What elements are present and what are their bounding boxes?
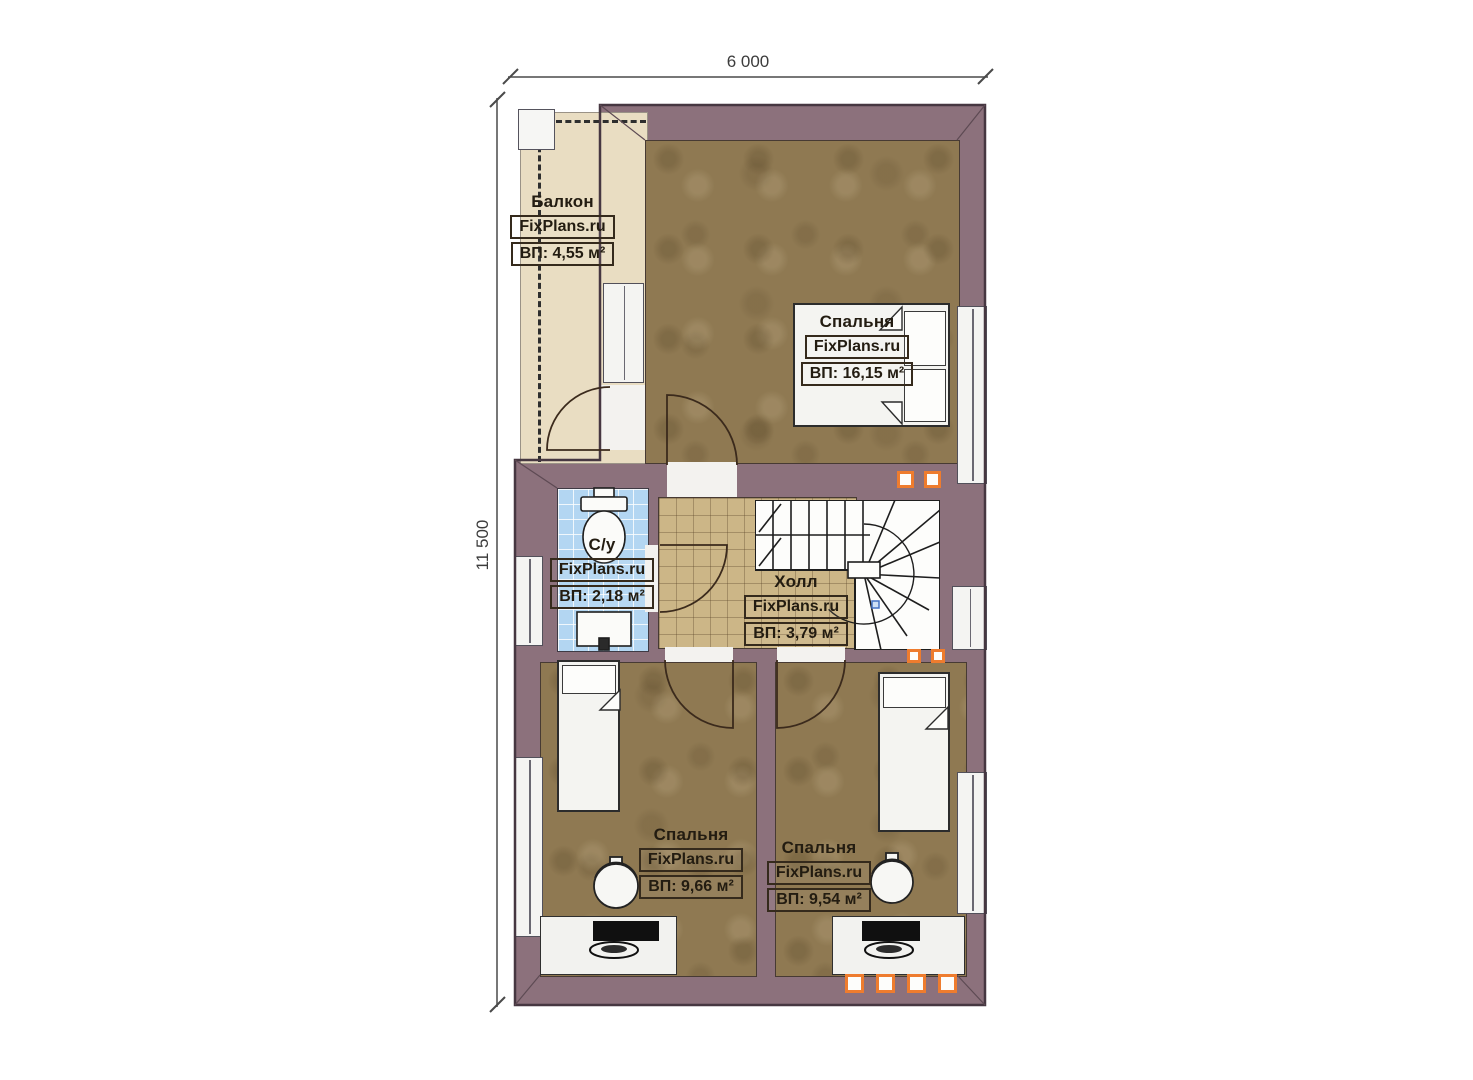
watermark-box: FixPlans.ru [510, 215, 614, 239]
room-name: С/у [588, 535, 615, 555]
vent-marker [931, 649, 945, 663]
area-box: ВП: 4,55 м² [511, 242, 615, 266]
room-label-bedroom-right: Спальня FixPlans.ru ВП: 9,54 м² [760, 838, 878, 912]
room-name: Холл [774, 572, 817, 592]
room-name: Спальня [782, 838, 857, 858]
room-label-bathroom: С/у FixPlans.ru ВП: 2,18 м² [548, 535, 656, 609]
vent-marker [897, 471, 914, 488]
blanket-fold [600, 690, 620, 710]
watermark-box: FixPlans.ru [805, 335, 909, 359]
dimension-height-label: 11 500 [473, 490, 493, 600]
door-bedroom-left [665, 660, 733, 728]
vent-marker [907, 649, 921, 663]
watermark-box: FixPlans.ru [550, 558, 654, 582]
door-bedroom-right [777, 660, 845, 728]
room-name: Спальня [654, 825, 729, 845]
door-master [667, 395, 737, 465]
dimension-width-label: 6 000 [693, 52, 803, 72]
plan-linework [0, 0, 1473, 1080]
room-label-bedroom-master: Спальня FixPlans.ru ВП: 16,15 м² [798, 312, 916, 386]
area-box: ВП: 9,54 м² [767, 888, 871, 912]
watermark-box: FixPlans.ru [639, 848, 743, 872]
floor-plan-canvas: Балкон FixPlans.ru ВП: 4,55 м² Спальня F… [0, 0, 1473, 1080]
monitor-left [593, 921, 659, 941]
vent-marker [907, 974, 926, 993]
watermark-box: FixPlans.ru [744, 595, 848, 619]
area-box: ВП: 2,18 м² [550, 585, 654, 609]
room-name: Спальня [820, 312, 895, 332]
area-box: ВП: 16,15 м² [801, 362, 913, 386]
room-label-bedroom-left: Спальня FixPlans.ru ВП: 9,66 м² [632, 825, 750, 899]
vent-marker [876, 974, 895, 993]
blanket-fold [882, 402, 902, 424]
vent-marker [924, 471, 941, 488]
room-name: Балкон [531, 192, 594, 212]
watermark-box: FixPlans.ru [767, 861, 871, 885]
blanket-fold [926, 707, 948, 729]
room-label-hall: Холл FixPlans.ru ВП: 3,79 м² [737, 572, 855, 646]
door-bathroom [660, 545, 727, 612]
vent-marker [845, 974, 864, 993]
area-box: ВП: 3,79 м² [744, 622, 848, 646]
computers [590, 921, 920, 958]
room-label-balcony: Балкон FixPlans.ru ВП: 4,55 м² [500, 192, 625, 266]
vent-marker [938, 974, 957, 993]
area-box: ВП: 9,66 м² [639, 875, 743, 899]
monitor-right [862, 921, 920, 941]
